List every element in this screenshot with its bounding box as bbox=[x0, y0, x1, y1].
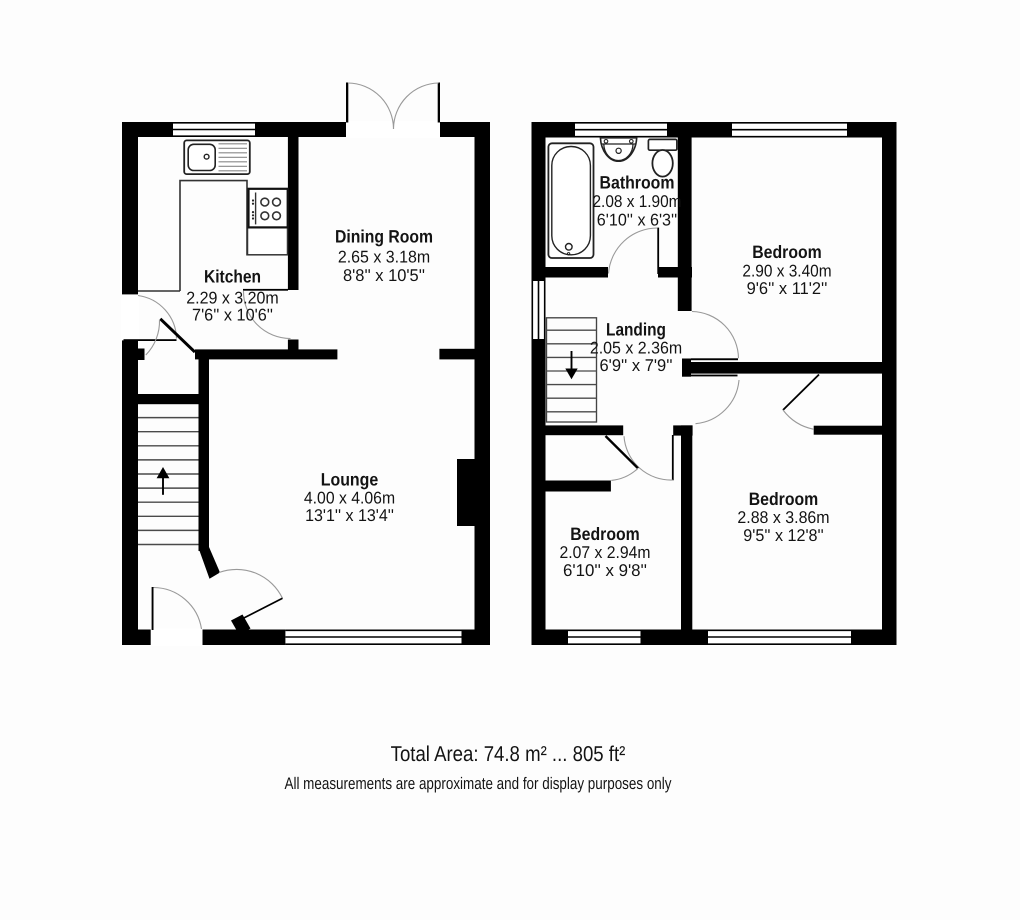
svg-text:Bathroom: Bathroom bbox=[600, 172, 675, 192]
svg-text:6'10'' x 6'3'': 6'10'' x 6'3'' bbox=[597, 211, 677, 230]
svg-text:8'8'' x 10'5'': 8'8'' x 10'5'' bbox=[343, 266, 425, 285]
svg-text:2.90 x 3.40m: 2.90 x 3.40m bbox=[742, 262, 831, 281]
svg-text:2.05 x 2.36m: 2.05 x 2.36m bbox=[590, 339, 682, 358]
svg-text:6'9'' x 7'9'': 6'9'' x 7'9'' bbox=[600, 356, 673, 375]
svg-text:13'1'' x 13'4'': 13'1'' x 13'4'' bbox=[305, 506, 394, 525]
svg-text:4.00 x 4.06m: 4.00 x 4.06m bbox=[304, 488, 395, 507]
svg-text:Bedroom: Bedroom bbox=[749, 489, 819, 509]
svg-text:2.08 x 1.90m: 2.08 x 1.90m bbox=[593, 192, 682, 211]
svg-text:All measurements are approxima: All measurements are approximate and for… bbox=[285, 774, 672, 793]
svg-text:Dining Room: Dining Room bbox=[335, 226, 433, 246]
svg-text:Lounge: Lounge bbox=[321, 469, 378, 489]
svg-text:Bedroom: Bedroom bbox=[752, 242, 822, 262]
svg-text:2.88 x 3.86m: 2.88 x 3.86m bbox=[737, 508, 829, 527]
svg-text:Total Area: 74.8 m² ... 805 ft: Total Area: 74.8 m² ... 805 ft² bbox=[391, 742, 626, 766]
svg-text:Kitchen: Kitchen bbox=[204, 266, 261, 286]
svg-text:7'6'' x 10'6'': 7'6'' x 10'6'' bbox=[192, 306, 273, 325]
svg-text:6'10'' x 9'8'': 6'10'' x 9'8'' bbox=[563, 561, 647, 580]
svg-text:9'6'' x 11'2'': 9'6'' x 11'2'' bbox=[747, 279, 828, 298]
svg-text:Landing: Landing bbox=[606, 320, 666, 340]
svg-text:9'5'' x 12'8'': 9'5'' x 12'8'' bbox=[743, 526, 823, 545]
svg-text:2.07 x 2.94m: 2.07 x 2.94m bbox=[560, 543, 651, 562]
svg-text:Bedroom: Bedroom bbox=[570, 524, 640, 544]
svg-text:2.65 x 3.18m: 2.65 x 3.18m bbox=[338, 247, 430, 266]
